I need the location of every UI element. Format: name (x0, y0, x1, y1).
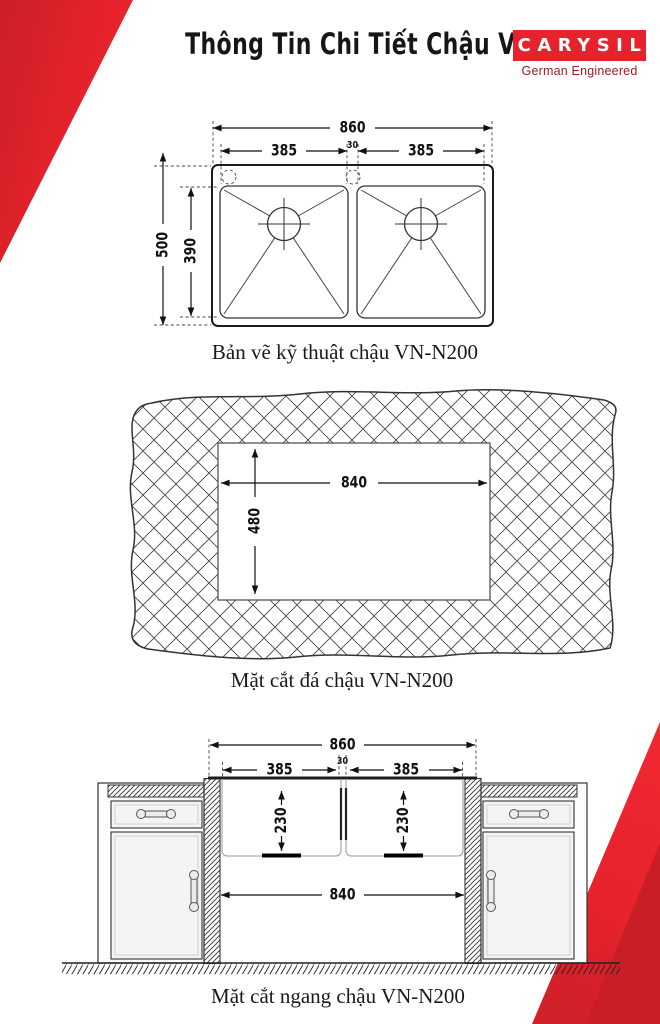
dim-section-inner-width: 840 (221, 886, 464, 904)
dim-label-840-section: 840 (329, 886, 355, 904)
dim-overall-width: 860 (213, 119, 492, 137)
right-door-handle (487, 871, 496, 912)
right-door (483, 832, 574, 959)
dim-label-390: 390 (182, 238, 200, 264)
dim-section-left-bowl: 385 (223, 761, 336, 779)
diagram-cross-section: 860 385 30 385 230 (62, 736, 620, 974)
left-cabinet (98, 783, 204, 963)
dim-label-385-right: 385 (408, 142, 434, 160)
dim-label-230-right: 230 (395, 807, 413, 833)
dim-label-230-left: 230 (273, 807, 291, 833)
diagram-stone-cutout: 840 480 (130, 390, 616, 659)
floor (62, 963, 620, 974)
dim-label-500: 500 (154, 232, 172, 258)
sink-outline (212, 165, 493, 326)
right-support-panel (465, 779, 481, 964)
dim-label-480: 480 (246, 508, 264, 534)
dim-label-30: 30 (347, 140, 358, 151)
dim-label-385-right-section: 385 (393, 761, 419, 779)
dim-label-840-stone: 840 (341, 474, 367, 492)
left-door-handle (190, 871, 199, 912)
caption-stone-cutout: Mặt cắt đá chậu VN-N200 (12, 668, 660, 693)
dim-label-860: 860 (339, 119, 365, 137)
caption-cross-section: Mặt cắt ngang chậu VN-N200 (8, 984, 660, 1009)
technical-drawings: 860 385 30 385 500 (0, 0, 660, 1024)
caption-technical-drawing: Bản vẽ kỹ thuật chậu VN-N200 (15, 340, 660, 365)
dim-label-30-section: 30 (337, 756, 348, 767)
dim-right-bowl-depth: 230 (395, 791, 413, 851)
dim-overall-depth: 500 (154, 153, 172, 325)
right-cabinet (481, 783, 587, 963)
dim-right-bowl-width: 385 (358, 142, 484, 160)
dim-label-385-left-section: 385 (266, 761, 292, 779)
bowl-divider (341, 788, 346, 840)
dim-left-bowl-width: 385 (221, 142, 347, 160)
diagram-top-view: 860 385 30 385 500 (154, 119, 493, 326)
dim-section-right-bowl: 385 (350, 761, 462, 779)
left-drawer-handle (137, 810, 176, 819)
dim-label-860-section: 860 (329, 736, 355, 754)
dim-label-385-left: 385 (271, 142, 297, 160)
left-support-panel (204, 779, 220, 964)
spec-sheet-page: Thông Tin Chi Tiết Chậu VN-N200 CARYSIL … (0, 0, 660, 1024)
dim-section-overall-width: 860 (210, 736, 475, 754)
dim-bowl-depth: 390 (182, 188, 200, 316)
dim-left-bowl-depth: 230 (273, 791, 291, 851)
right-drawer-handle (510, 810, 549, 819)
left-door (111, 832, 202, 959)
